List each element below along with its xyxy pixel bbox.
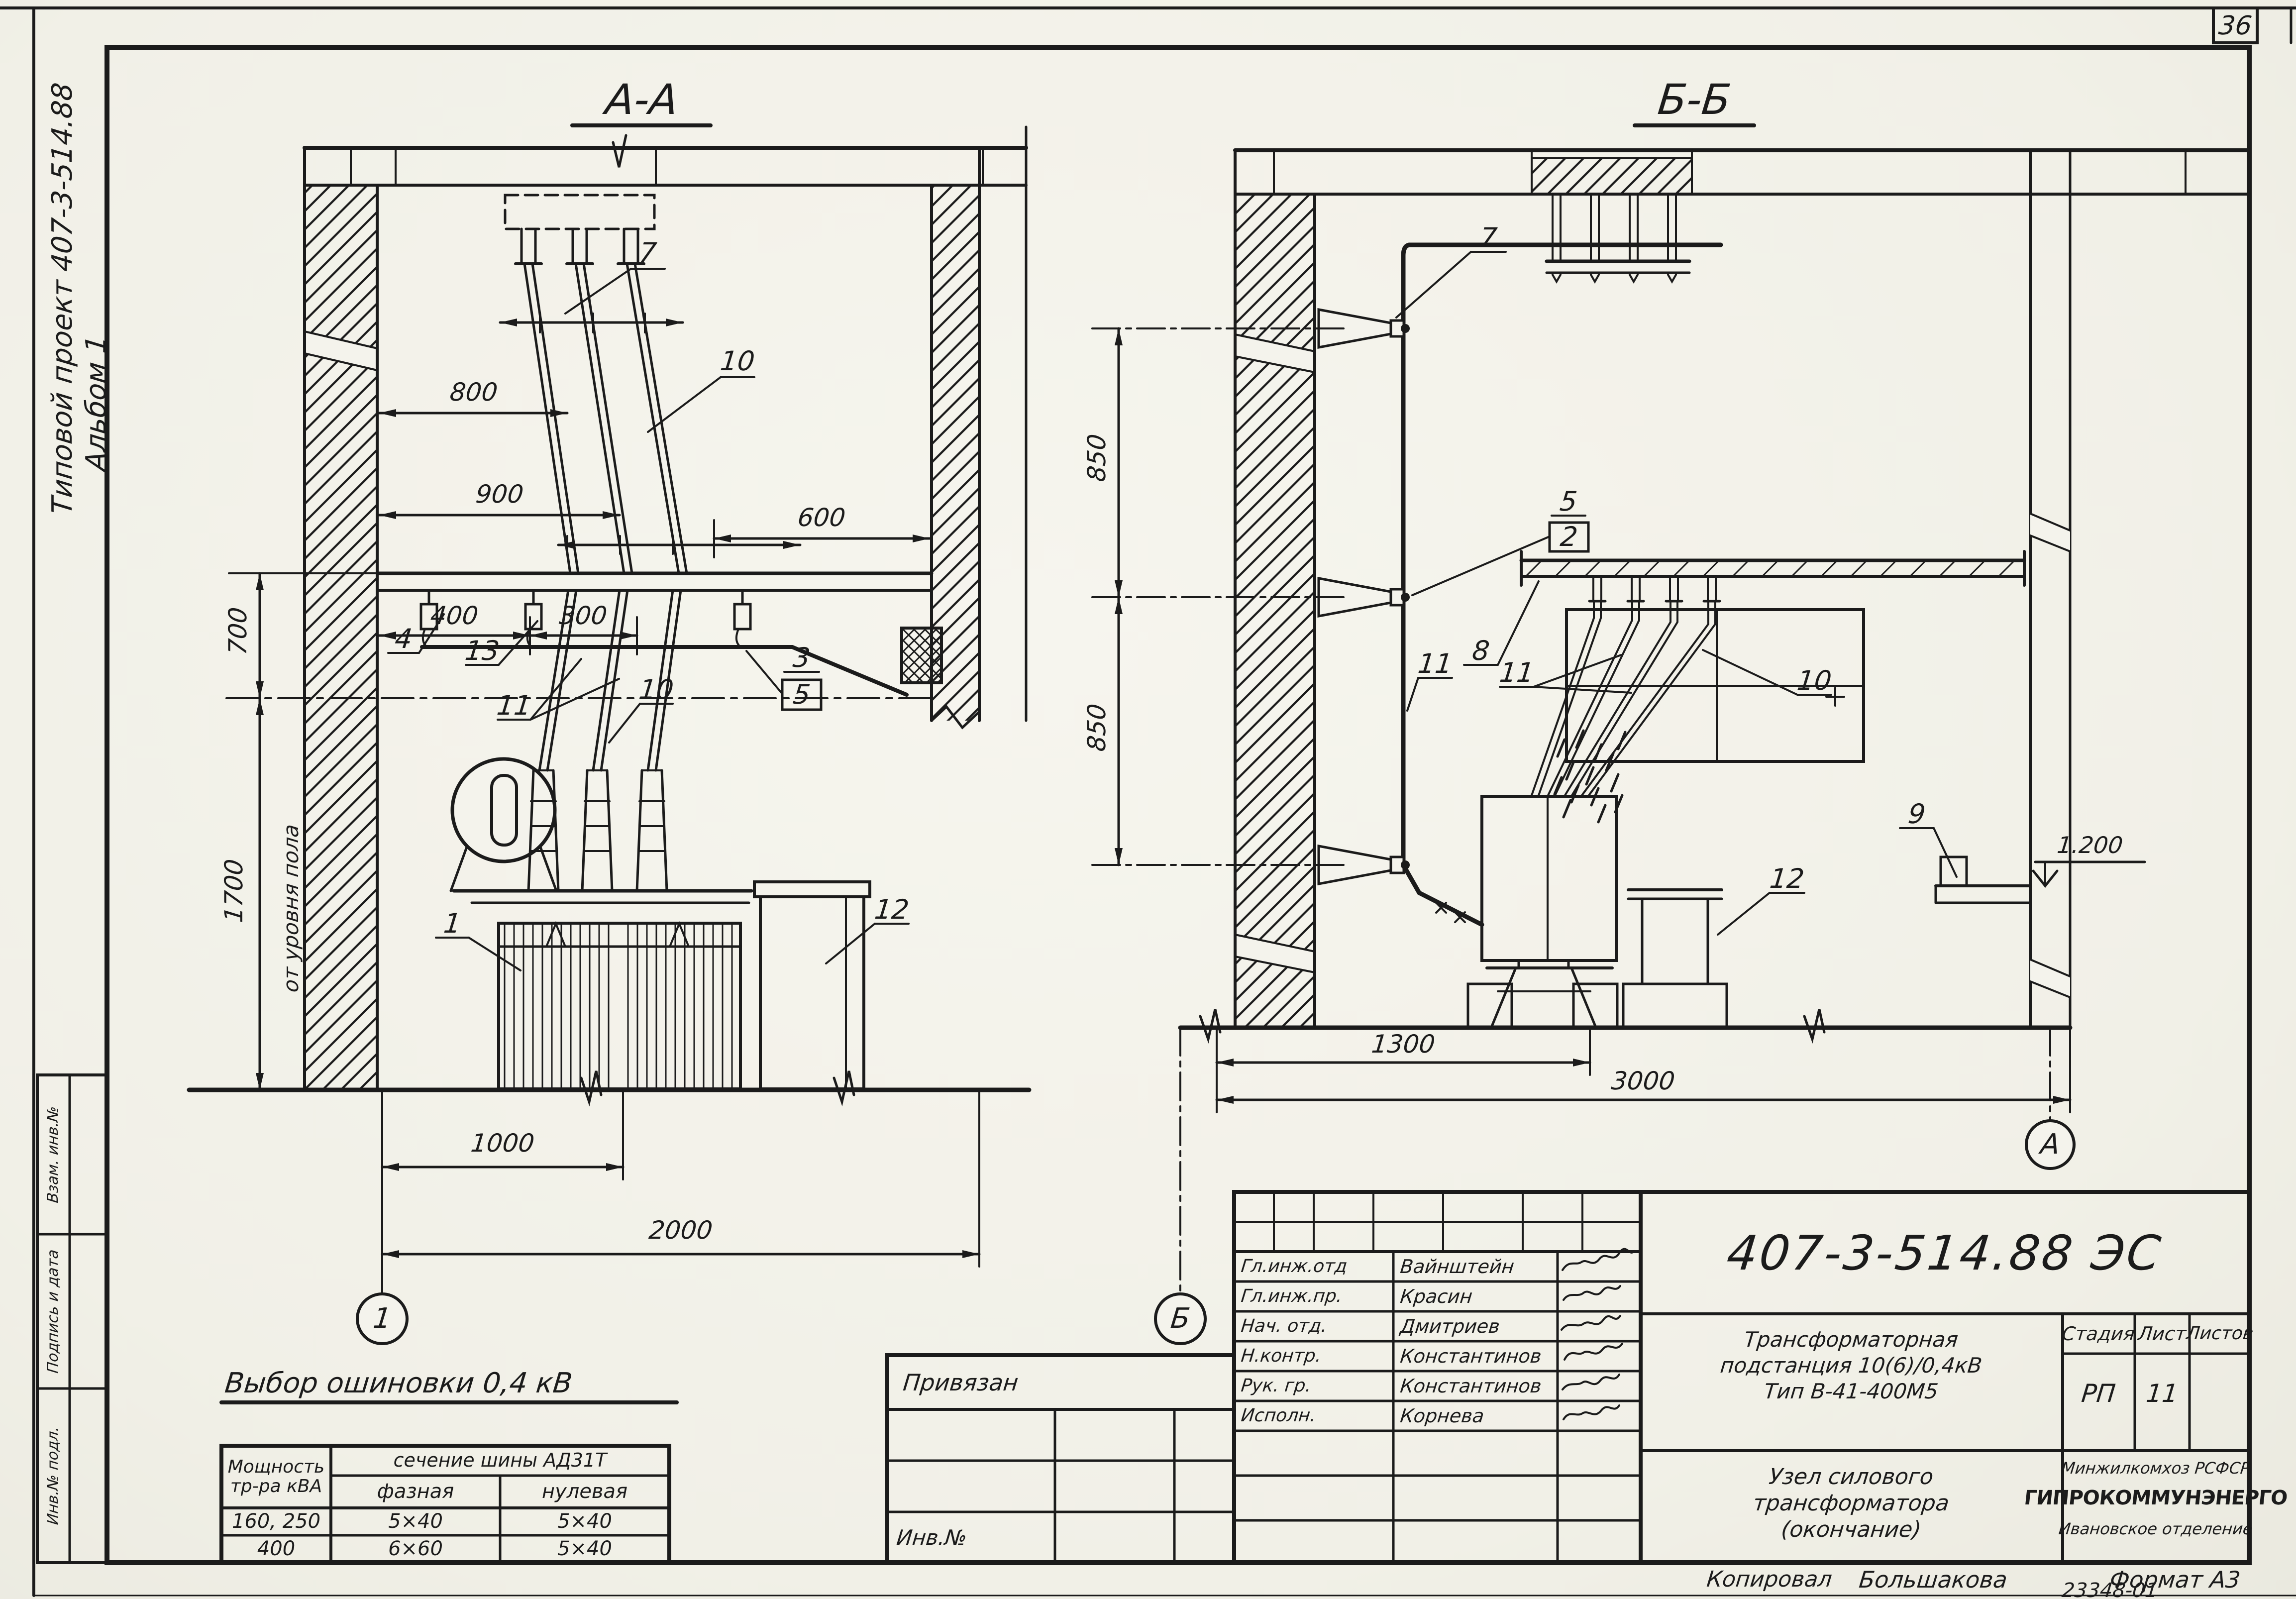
aa-dim-900: 900 — [475, 482, 525, 507]
sig-name-5: Корнева — [1399, 1406, 1485, 1425]
object-title-line1: Узел силового — [1768, 1466, 1935, 1488]
bus-table-phase-header: фазная — [331, 1476, 500, 1508]
bus-table-row1-power: 400 — [221, 1535, 331, 1563]
project-title-line2: подстанция 10(6)/0,4кВ — [1719, 1355, 1983, 1376]
aa-callout-11: 11 — [496, 692, 532, 719]
page-number: 36 — [2217, 13, 2253, 39]
bus-table-row1-phase: 6×60 — [331, 1535, 500, 1563]
bus-table-power-header: Мощность тр-ра кВА — [221, 1446, 331, 1508]
bb-callout-11-bus: 11 — [1417, 650, 1454, 677]
bb-callout-11-tubes: 11 — [1498, 659, 1535, 686]
sig-name-2: Дмитриев — [1399, 1317, 1501, 1336]
sig-role-4: Рук. гр. — [1240, 1377, 1312, 1395]
aa-callout-4: 4 — [394, 626, 414, 652]
aa-dim-1700: 1700 — [221, 858, 246, 924]
aa-dim-700: 700 — [225, 606, 250, 656]
sig-role-2: Нач. отд. — [1240, 1317, 1328, 1335]
sig-name-0: Вайнштейн — [1399, 1257, 1515, 1276]
bus-table-neutral-header: нулевая — [500, 1476, 669, 1508]
object-title-line2: трансформатора — [1752, 1492, 1950, 1514]
sig-role-5: Исполн. — [1240, 1407, 1317, 1425]
margin-album-label: Альбом 1 — [83, 334, 110, 472]
bus-table-row0-power: 160, 250 — [221, 1508, 331, 1535]
project-title-line1: Трансформаторная — [1743, 1329, 1959, 1350]
aa-callout-7: 7 — [638, 239, 658, 266]
binding-stamp-inv: Инв.№ — [896, 1527, 968, 1548]
aa-callout-10-upper: 10 — [719, 348, 756, 375]
aa-axis-1: 1 — [372, 1305, 393, 1333]
sig-name-4: Константинов — [1399, 1377, 1543, 1395]
bus-table-section-header: сечение шины АД31Т — [331, 1446, 669, 1476]
aa-callout-5: 5 — [792, 681, 812, 708]
sig-role-1: Гл.инж.пр. — [1240, 1287, 1343, 1305]
bb-callout-8: 8 — [1471, 638, 1491, 664]
bb-level-mark: 1.200 — [2056, 834, 2124, 856]
bb-callout-12: 12 — [1769, 865, 1805, 892]
bb-dim-3000: 3000 — [1610, 1068, 1676, 1093]
bb-axis-a: А — [2039, 1131, 2061, 1159]
org-line1: Минжилкомхоз РСФСР — [2061, 1460, 2251, 1476]
bus-table-row0-phase: 5×40 — [331, 1508, 500, 1535]
aa-callout-3: 3 — [792, 644, 812, 671]
margin-stamp-inv: Инв.№ подл. — [46, 1426, 61, 1526]
project-title-line3: Тип В-41-400М5 — [1763, 1381, 1939, 1402]
sig-name-3: Константинов — [1399, 1347, 1543, 1366]
copied-name: Большакова — [1858, 1568, 2009, 1591]
org-line3: Ивановское отделение — [2058, 1521, 2253, 1537]
copied-label: Копировал — [1706, 1569, 1833, 1591]
bb-dim-850-upper: 850 — [1084, 433, 1109, 483]
bus-table-row0-neutral: 5×40 — [500, 1508, 669, 1535]
bb-callout-9: 9 — [1907, 801, 1927, 828]
object-title-line3: (окончание) — [1780, 1519, 1922, 1541]
drawing-sheet: 36 23348-01 Типовой проект 407-3-514.88 … — [0, 0, 2296, 1599]
stage-value: РП — [2080, 1381, 2116, 1406]
bb-callout-7: 7 — [1478, 224, 1498, 251]
bb-callout-2: 2 — [1559, 524, 1579, 550]
bus-table-row1-neutral: 5×40 — [500, 1535, 669, 1563]
bb-callout-10: 10 — [1796, 667, 1833, 694]
format-label: Формат А3 — [2109, 1568, 2242, 1591]
binding-stamp-label: Привязан — [902, 1371, 1020, 1394]
sig-role-3: Н.контр. — [1240, 1347, 1322, 1365]
bb-callout-5: 5 — [1559, 488, 1578, 515]
aa-callout-12: 12 — [873, 896, 910, 923]
bb-dim-850-lower: 850 — [1084, 703, 1109, 753]
stage-header: Стадия — [2061, 1324, 2136, 1343]
aa-dim-600: 600 — [797, 505, 847, 530]
margin-stamp-vzam: Взам. инв.№ — [46, 1105, 61, 1203]
bus-table-title: Выбор ошиновки 0,4 кВ — [223, 1370, 574, 1397]
aa-dim-800: 800 — [449, 380, 499, 405]
aa-floor-note: от уровня пола — [281, 823, 302, 993]
aa-dim-1000: 1000 — [470, 1131, 536, 1156]
sig-name-1: Красин — [1399, 1287, 1473, 1306]
margin-project-label: Типовой проект 407-3-514.88 — [49, 82, 77, 516]
sheet-value: 11 — [2145, 1381, 2180, 1406]
doc-number: 407-3-514.88 ЭС — [1725, 1229, 2165, 1277]
bb-axis-b: Б — [1169, 1305, 1191, 1333]
aa-callout-13: 13 — [464, 638, 501, 664]
sig-role-0: Гл.инж.отд — [1240, 1258, 1348, 1276]
org-line2: ГИПРОКОММУНЭНЕРГО — [2023, 1488, 2289, 1508]
aa-callout-10-lower: 10 — [638, 676, 675, 703]
aa-dim-2000: 2000 — [648, 1218, 714, 1243]
margin-stamp-podpis: Подпись и дата — [46, 1249, 61, 1374]
aa-dim-400: 400 — [429, 603, 480, 628]
sheets-header: Листов — [2186, 1325, 2254, 1343]
section-bb-title: Б-Б — [1656, 79, 1733, 120]
aa-dim-300: 300 — [558, 603, 609, 628]
bb-dim-1300: 1300 — [1370, 1032, 1437, 1057]
aa-callout-1: 1 — [442, 910, 462, 937]
section-aa-title: А-А — [604, 79, 680, 120]
sheet-header: Лист — [2137, 1324, 2187, 1343]
